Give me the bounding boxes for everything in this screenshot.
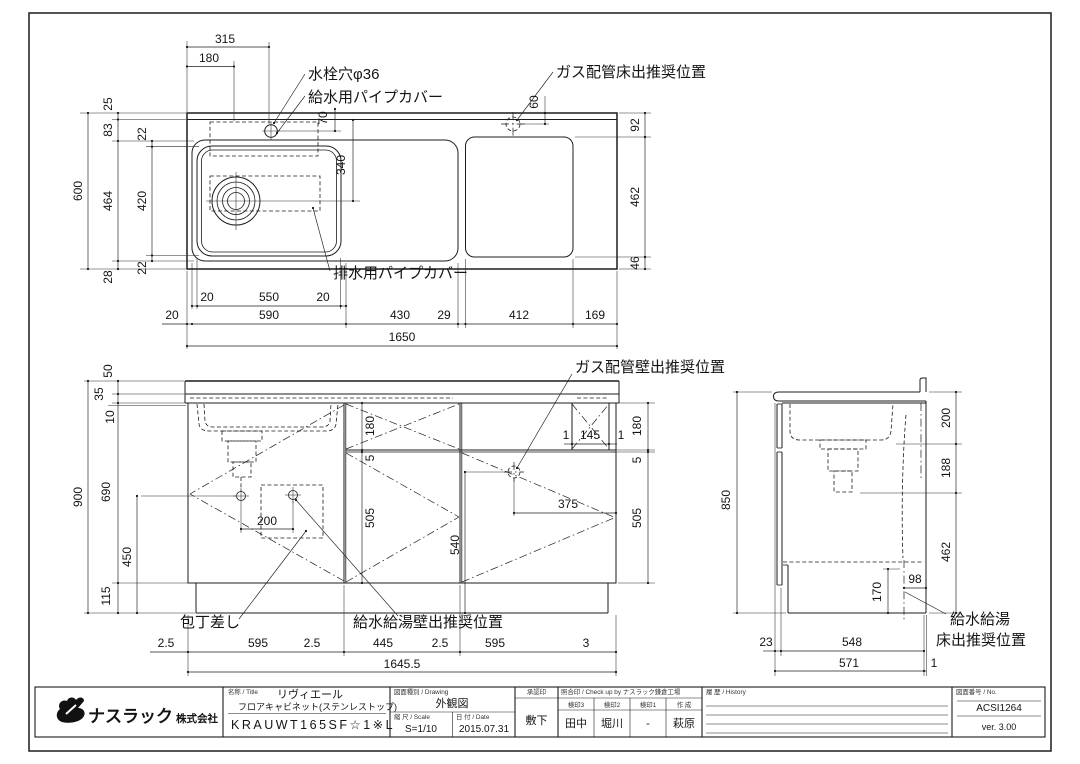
name-label: 名称 / Title (228, 687, 258, 696)
dim-1a: 1 (563, 428, 570, 442)
dim-595b: 595 (485, 636, 505, 650)
dim-170: 170 (870, 582, 884, 602)
dim-22a: 22 (135, 127, 149, 141)
dim-23: 23 (759, 635, 773, 649)
dim-430: 430 (390, 308, 410, 322)
model-number: KRAUWT165SF☆1※L (231, 718, 395, 732)
dim-180: 180 (199, 51, 219, 65)
drawing-no: ACSI1264 (976, 703, 1022, 714)
dim-s462: 462 (939, 542, 953, 562)
supply-floor-label-1: 給水給湯 (950, 611, 1010, 628)
dim-s200: 200 (939, 408, 953, 428)
supply-pipe-cover-label: 給水用パイプカバー (308, 89, 443, 106)
dim-98: 98 (908, 572, 922, 586)
dim-3: 3 (583, 636, 590, 650)
dim-46: 46 (628, 256, 642, 270)
dim-25a: 2.5 (158, 636, 175, 650)
stamp3-name: 田中 (565, 717, 587, 730)
gas-floor-label: ガス配管床出推奨位置 (556, 64, 706, 81)
supply-floor-label-2: 床出推奨位置 (936, 632, 1026, 649)
supply-wall-position-symbol (233, 487, 301, 504)
dim-115: 115 (99, 586, 113, 605)
dim-600: 600 (71, 181, 85, 201)
dim-m5: 5 (363, 454, 377, 461)
dim-28: 28 (101, 270, 115, 284)
dim-29: 29 (437, 308, 451, 322)
knife-slot-label: 包丁差し (180, 614, 240, 631)
version: ver. 3.00 (982, 722, 1017, 732)
dim-1650: 1650 (389, 330, 416, 344)
drawing-no-label: 図面番号 / No. (956, 688, 997, 696)
dim-412: 412 (509, 308, 529, 322)
supply-pipe-cover-outline (210, 122, 318, 156)
side-front-panel (777, 404, 782, 585)
dim-450: 450 (120, 547, 134, 567)
dim-548: 548 (842, 635, 862, 649)
sheet-border (29, 13, 1051, 751)
stamp2-name: 堀川 (601, 717, 623, 730)
dim-92: 92 (628, 118, 642, 132)
dim-375: 375 (558, 497, 578, 511)
dim-420: 420 (135, 191, 149, 211)
front-view: 200 540 375 1 145 1 180 5 505 180 5 505 … (71, 359, 725, 676)
history-label: 履 歴 / History (706, 688, 747, 696)
dim-900: 900 (71, 487, 85, 507)
approval-name: 敷下 (526, 713, 548, 727)
dim-445: 445 (373, 636, 393, 650)
nasluck-logo-icon (57, 697, 85, 722)
drawing-type-label: 図面種別 / Drawing (394, 687, 449, 696)
dim-10: 10 (103, 410, 117, 424)
dim-20a: 20 (200, 290, 214, 304)
dim-r180: 180 (630, 416, 644, 436)
hidden-sink-side (790, 404, 893, 492)
dim-595a: 595 (248, 636, 268, 650)
dim-540: 540 (448, 535, 462, 555)
drawing-sheet: 315 180 70 340 60 92 462 46 600 25 83 46… (0, 0, 1080, 764)
dim-1b: 1 (618, 428, 625, 442)
dim-690: 690 (99, 482, 113, 502)
dim-25c: 2.5 (432, 636, 449, 650)
dim-70: 70 (316, 111, 330, 125)
date-value: 2015.07.31 (459, 724, 509, 735)
scale-value: S=1/10 (405, 724, 437, 735)
dim-315: 315 (215, 32, 235, 46)
supply-wall-label: 給水給湯壁出推奨位置 (353, 614, 503, 631)
dim-145: 145 (580, 428, 600, 442)
company-suffix: 株式会社 (176, 712, 218, 725)
dim-20c: 20 (165, 308, 179, 322)
drain-pipe-cover-label: 排水用パイプカバー (333, 265, 468, 282)
author-label: 作 成 (677, 700, 692, 709)
dim-35: 35 (92, 387, 106, 401)
dim-188: 188 (939, 458, 953, 478)
dim-83: 83 (101, 123, 115, 137)
title-block: ナスラック 株式会社 名称 / Title リヴィエール フロアキャビネット(ス… (35, 687, 1045, 737)
dim-571: 571 (839, 656, 859, 670)
dim-850: 850 (719, 490, 733, 510)
dim-1645-5: 1645.5 (384, 657, 421, 671)
dim-25: 25 (101, 97, 115, 111)
stamp1-name: - (646, 718, 650, 730)
dim-r5: 5 (630, 456, 644, 463)
dim-1: 1 (931, 656, 938, 670)
company-name: ナスラック (88, 707, 173, 726)
product-name: フロアキャビネット(ステンレストップ) (238, 702, 397, 712)
stamp2-label: 検印2 (604, 700, 621, 709)
dim-462-plan: 462 (628, 187, 642, 207)
author-name: 萩原 (673, 717, 695, 730)
dim-25b: 2.5 (304, 636, 321, 650)
drain-pipe-cover-outline (210, 176, 320, 211)
dim-200: 200 (257, 514, 277, 528)
dim-340: 340 (334, 155, 348, 175)
date-label: 日 付 / Date (456, 712, 490, 721)
knife-slot-outline (261, 485, 323, 538)
dim-r505: 505 (630, 508, 644, 528)
dim-m180: 180 (363, 416, 377, 436)
check-label: 照合印 / Check up by ナスラック鎌倉工場 (561, 687, 681, 696)
dim-20b: 20 (316, 290, 330, 304)
gas-wall-label: ガス配管壁出推奨位置 (575, 359, 725, 376)
stamp3-label: 検印3 (568, 700, 585, 709)
drawing-type: 外観図 (436, 696, 469, 710)
dim-22b: 22 (135, 261, 149, 275)
dim-169: 169 (585, 308, 605, 322)
stamp1-label: 検印1 (640, 700, 657, 709)
side-view: 98 170 850 200 188 462 23 548 571 1 給水給湯… (719, 378, 1026, 676)
scale-label: 縮 尺 / Scale (394, 712, 430, 721)
dim-550: 550 (259, 290, 279, 304)
faucet-hole-label: 水栓穴φ36 (308, 66, 379, 83)
dim-50: 50 (101, 364, 115, 378)
series-name: リヴィエール (277, 687, 343, 701)
dim-590: 590 (259, 308, 279, 322)
dim-464: 464 (101, 191, 115, 211)
approval-label: 承認印 (527, 687, 546, 696)
cad-drawing: 315 180 70 340 60 92 462 46 600 25 83 46… (0, 0, 1080, 764)
dim-m505: 505 (363, 508, 377, 528)
plan-view: 315 180 70 340 60 92 462 46 600 25 83 46… (71, 32, 706, 349)
